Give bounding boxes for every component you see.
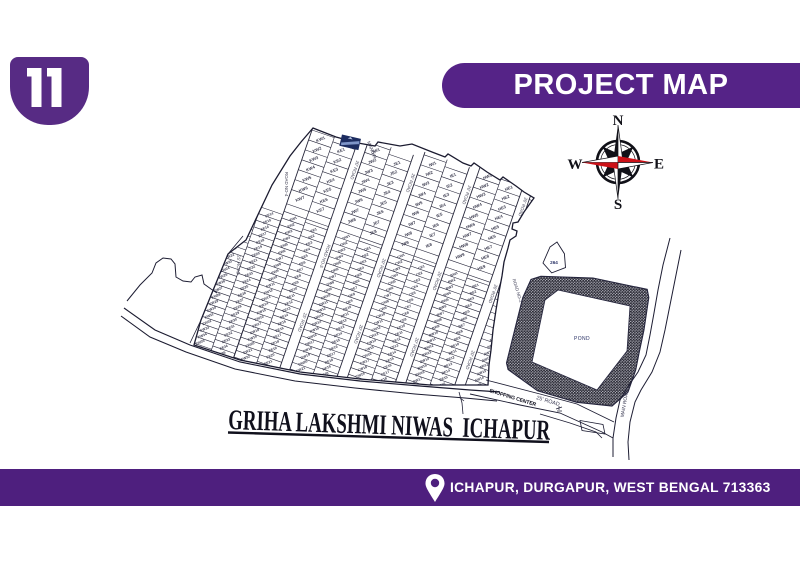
svg-text:GW7: GW7	[519, 244, 530, 253]
svg-text:CW5: CW5	[388, 279, 397, 286]
svg-text:KE7: KE7	[316, 206, 326, 214]
svg-text:KW2: KW2	[312, 145, 323, 154]
svg-text:HW7: HW7	[462, 231, 473, 240]
svg-text:HE9: HE9	[477, 263, 487, 271]
svg-text:ROAD NO-4: ROAD NO-4	[284, 172, 289, 197]
svg-text:KE6: KE6	[319, 196, 329, 204]
svg-text:IW8: IW8	[404, 230, 413, 238]
svg-text:CW22: CW22	[348, 391, 359, 399]
svg-text:EW6: EW6	[278, 249, 287, 256]
svg-text:EE38: EE38	[210, 370, 219, 377]
svg-text:JE4: JE4	[382, 189, 391, 197]
svg-text:KW5: KW5	[302, 174, 313, 183]
svg-text:DW7: DW7	[328, 274, 337, 281]
svg-text:264: 264	[550, 260, 558, 265]
svg-text:KE4: KE4	[326, 177, 336, 185]
svg-text:EW18: EW18	[234, 226, 244, 233]
svg-text:IE6: IE6	[432, 222, 440, 229]
svg-text:HW3: HW3	[476, 191, 487, 200]
svg-text:GE3: GE3	[553, 216, 563, 224]
svg-text:DW1: DW1	[342, 234, 351, 241]
svg-text:CE19: CE19	[376, 383, 386, 390]
svg-text:BW7: BW7	[436, 311, 445, 318]
svg-text:IE2: IE2	[445, 182, 453, 189]
svg-text:BE17: BE17	[434, 388, 444, 395]
svg-text:DW5: DW5	[333, 260, 342, 267]
svg-text:EW15: EW15	[240, 206, 250, 213]
svg-text:JW4: JW4	[360, 177, 370, 185]
svg-text:IW3: IW3	[421, 180, 430, 188]
svg-text:CW8: CW8	[381, 299, 390, 306]
svg-text:GE1: GE1	[560, 196, 570, 204]
svg-text:KE2: KE2	[333, 157, 343, 165]
svg-text:HE6: HE6	[487, 233, 497, 241]
svg-text:IE7: IE7	[429, 231, 437, 238]
svg-text:GE8: GE8	[536, 266, 546, 274]
svg-text:JE7: JE7	[372, 219, 381, 227]
svg-text:BW9: BW9	[431, 324, 440, 331]
svg-text:IE4: IE4	[439, 202, 447, 209]
svg-text:AW25: AW25	[449, 448, 459, 455]
svg-text:DE24: DE24	[310, 398, 320, 405]
svg-text:E: E	[654, 157, 664, 173]
svg-text:DW3: DW3	[337, 247, 346, 254]
svg-text:W: W	[568, 157, 583, 173]
svg-text:EW25: EW25	[233, 374, 243, 381]
svg-text:DW8: DW8	[326, 280, 335, 287]
svg-text:BW5: BW5	[441, 297, 450, 304]
svg-text:DW9: DW9	[324, 287, 333, 294]
svg-text:EW38: EW38	[188, 359, 198, 366]
svg-text:EE24: EE24	[257, 379, 266, 386]
svg-text:AW8: AW8	[489, 336, 498, 343]
svg-text:JE3: JE3	[386, 179, 395, 187]
svg-text:AE25: AE25	[470, 460, 480, 467]
svg-text:JW6: JW6	[354, 197, 364, 205]
svg-text:EW2: EW2	[287, 222, 296, 229]
svg-text:CE21: CE21	[371, 396, 381, 403]
svg-text:IW2: IW2	[425, 169, 434, 177]
svg-text:EW3: EW3	[284, 229, 293, 236]
svg-text:BW1: BW1	[450, 271, 459, 278]
svg-text:GW2: GW2	[536, 195, 547, 204]
svg-text:AE12: AE12	[499, 374, 509, 381]
svg-text:KW3: KW3	[308, 155, 319, 164]
svg-text:AW1: AW1	[505, 290, 514, 297]
svg-text:AW18: AW18	[465, 402, 475, 409]
svg-text:GW8: GW8	[515, 253, 526, 262]
svg-text:CW3: CW3	[392, 266, 401, 273]
svg-text:AW3: AW3	[500, 303, 509, 310]
svg-text:IE1: IE1	[449, 171, 457, 178]
svg-text:HW1: HW1	[482, 172, 493, 181]
svg-text:BW2: BW2	[447, 278, 456, 285]
svg-text:KW4: KW4	[305, 164, 316, 173]
svg-text:25' ROAD: 25' ROAD	[236, 255, 242, 275]
svg-text:JE5: JE5	[379, 199, 388, 207]
svg-text:HE2: HE2	[501, 193, 511, 201]
svg-text:N: N	[613, 113, 624, 129]
svg-text:AW4: AW4	[498, 310, 507, 317]
svg-text:POND: POND	[574, 336, 590, 342]
svg-text:GW5: GW5	[525, 224, 536, 233]
svg-text:GW3: GW3	[532, 204, 543, 213]
svg-text:HW5: HW5	[468, 212, 479, 221]
svg-text:KW6: KW6	[298, 185, 309, 194]
svg-text:GW9: GW9	[512, 264, 523, 273]
svg-text:BW3: BW3	[445, 284, 454, 291]
svg-text:IE8: IE8	[425, 241, 433, 248]
svg-text:HW8: HW8	[458, 241, 469, 250]
svg-text:HE1: HE1	[504, 184, 514, 192]
svg-text:IE5: IE5	[435, 211, 443, 218]
svg-text:BW4: BW4	[443, 291, 452, 298]
svg-text:IW1: IW1	[428, 160, 437, 168]
svg-text:EW8: EW8	[273, 262, 282, 269]
svg-text:EE25: EE25	[254, 386, 263, 393]
svg-text:JW7: JW7	[350, 207, 360, 215]
svg-text:GW1: GW1	[539, 184, 550, 193]
svg-text:BW8: BW8	[434, 317, 443, 324]
svg-text:KE5: KE5	[323, 186, 333, 194]
svg-text:EE37: EE37	[212, 364, 221, 371]
svg-text:BE19: BE19	[430, 402, 440, 409]
svg-text:EW9: EW9	[271, 269, 280, 276]
svg-text:HW2: HW2	[479, 182, 490, 191]
svg-text:HE4: HE4	[494, 213, 504, 221]
svg-text:JW3: JW3	[364, 167, 374, 175]
svg-text:HW6: HW6	[465, 221, 476, 230]
svg-text:BW6: BW6	[438, 304, 447, 311]
svg-text:JW8: JW8	[347, 216, 357, 224]
svg-text:IW7: IW7	[408, 220, 417, 228]
svg-text:CW7: CW7	[383, 292, 392, 299]
svg-text:DW2: DW2	[340, 240, 349, 247]
svg-text:EW16: EW16	[238, 213, 248, 220]
svg-text:JE6: JE6	[375, 208, 384, 216]
svg-text:AW15: AW15	[472, 382, 482, 389]
svg-text:GE2: GE2	[557, 206, 567, 214]
svg-text:AW2: AW2	[502, 297, 511, 304]
svg-text:KW7: KW7	[295, 194, 306, 203]
svg-text:JW2: JW2	[367, 157, 377, 165]
svg-text:JW5: JW5	[357, 186, 367, 194]
svg-text:CW9: CW9	[379, 306, 388, 313]
svg-text:EW14: EW14	[243, 200, 253, 207]
svg-text:JE2: JE2	[389, 169, 398, 177]
svg-text:CW6: CW6	[385, 286, 394, 293]
svg-text:JE1: JE1	[392, 159, 401, 167]
svg-text:AE24: AE24	[472, 453, 482, 460]
svg-text:AW5: AW5	[496, 316, 505, 323]
svg-text:EW5: EW5	[280, 242, 289, 249]
svg-text:DE23: DE23	[313, 391, 323, 398]
svg-text:BW20: BW20	[406, 396, 417, 404]
svg-text:CW23: CW23	[346, 398, 357, 406]
svg-text:HE5: HE5	[490, 224, 500, 232]
svg-text:KE3: KE3	[329, 166, 339, 174]
svg-text:S: S	[614, 197, 622, 213]
svg-text:IW5: IW5	[414, 200, 423, 208]
svg-text:DW24: DW24	[289, 386, 300, 394]
svg-text:HE8: HE8	[480, 253, 490, 261]
svg-text:EW1: EW1	[289, 216, 298, 223]
svg-text:KE1: KE1	[336, 146, 346, 154]
svg-text:IW4: IW4	[418, 190, 427, 198]
svg-text:HE7: HE7	[484, 244, 494, 252]
svg-text:CW4: CW4	[390, 273, 399, 280]
svg-text:EW7: EW7	[275, 255, 284, 262]
svg-text:EW4: EW4	[282, 236, 291, 243]
svg-text:HE3: HE3	[497, 204, 507, 212]
svg-text:EW17: EW17	[236, 220, 246, 227]
svg-text:IE3: IE3	[442, 191, 450, 198]
svg-text:DW25: DW25	[286, 392, 297, 400]
svg-text:HW9: HW9	[455, 252, 466, 261]
svg-text:GW4: GW4	[529, 214, 540, 223]
svg-text:KW1: KW1	[315, 135, 326, 144]
svg-text:HW4: HW4	[472, 201, 483, 210]
svg-text:DW6: DW6	[331, 267, 340, 274]
svg-text:GE5: GE5	[546, 236, 556, 244]
svg-text:DW4: DW4	[335, 254, 344, 261]
svg-text:CW2: CW2	[394, 259, 403, 266]
svg-text:CW1: CW1	[397, 253, 406, 260]
svg-text:IW6: IW6	[411, 209, 420, 217]
svg-text:GE4: GE4	[550, 226, 560, 234]
svg-text:25' ROAD: 25' ROAD	[535, 395, 560, 408]
svg-text:DE22: DE22	[315, 384, 325, 391]
svg-text:BW21: BW21	[403, 403, 414, 411]
svg-text:GW6: GW6	[522, 234, 533, 243]
svg-text:AE23: AE23	[474, 447, 484, 454]
